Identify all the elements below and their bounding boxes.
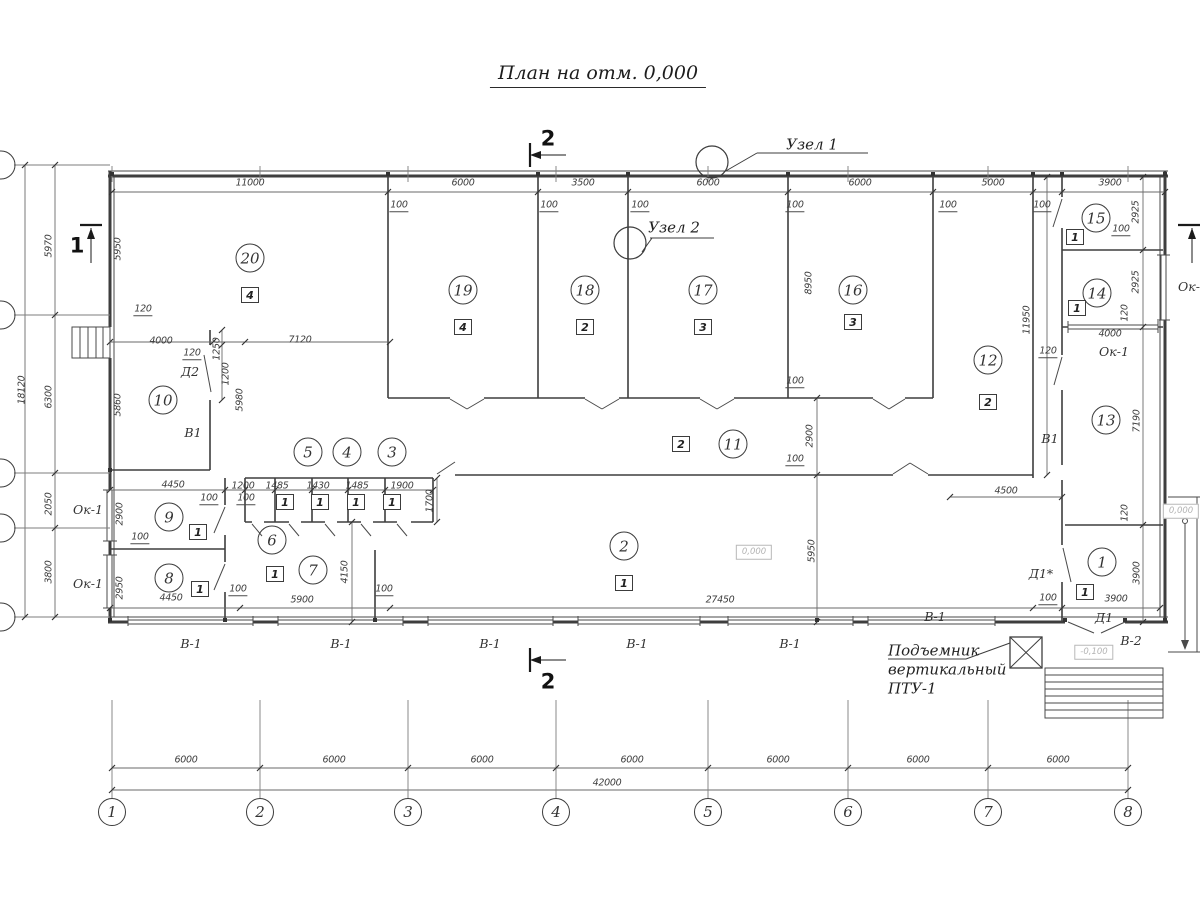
dim-label: 1250 (212, 338, 222, 361)
wall-tag: Д2 (181, 366, 199, 379)
dim-label: 5950 (807, 540, 817, 563)
room-bubble: 17 (689, 276, 718, 305)
wall-tag: В-1 (779, 638, 800, 651)
dim-callout-label: 100 (389, 200, 408, 212)
dim-callout-label: 100 (630, 200, 649, 212)
room-bubble: 18 (571, 276, 600, 305)
dim-callout-label: 100 (228, 584, 247, 596)
room-bubble: 12 (974, 346, 1003, 375)
room-bubble: 1 (1088, 548, 1117, 577)
dim-callout-label: 100 (236, 493, 255, 505)
dim-label: 120 (1120, 304, 1130, 321)
category-box: 3 (844, 314, 862, 330)
wall-tag: В-1 (479, 638, 500, 651)
dim-label: 6000 (1047, 755, 1070, 765)
dim-label: 2900 (805, 425, 815, 448)
category-box: 1 (189, 524, 207, 540)
section-mark-left: 1 (70, 236, 85, 257)
node-2-circle (614, 227, 646, 259)
category-box: 1 (191, 581, 209, 597)
dim-label: 5900 (291, 595, 314, 605)
category-box: 2 (979, 394, 997, 410)
room-bubble: 13 (1092, 406, 1121, 435)
dim-callout-label: 100 (539, 200, 558, 212)
dim-label: 18120 (17, 376, 27, 405)
dim-label: 1700 (425, 490, 435, 513)
dim-label: 3900 (1132, 562, 1142, 585)
category-box: 1 (1068, 300, 1086, 316)
stairs-right (1045, 668, 1163, 718)
category-box: 2 (576, 319, 594, 335)
wall-tag: В1 (1041, 433, 1058, 446)
dim-label: 2925 (1131, 271, 1141, 294)
dim-label: 4450 (162, 480, 185, 490)
room-bubble: 7 (299, 556, 328, 585)
wall-tag: Ок-1 (1178, 281, 1200, 294)
category-box: 3 (694, 319, 712, 335)
dim-label: 1200 (232, 481, 255, 491)
dim-label: 2925 (1131, 201, 1141, 224)
section-mark-top: 2 (541, 129, 556, 150)
dim-label: 5000 (982, 178, 1005, 188)
room-bubble: 10 (149, 386, 178, 415)
room-bubble: 8 (155, 564, 184, 593)
dim-label: 2050 (44, 493, 54, 516)
dim-label: 4150 (340, 561, 350, 584)
wall-tag: Д1 (1095, 612, 1113, 625)
axis-bubble: 7 (974, 798, 1002, 826)
elevation-badge: -0,100 (1074, 645, 1113, 660)
dim-callout-label: 120 (133, 304, 152, 316)
section-mark-bottom: 2 (541, 672, 556, 693)
category-box: 1 (1066, 229, 1084, 245)
room-bubble: 20 (236, 244, 265, 273)
dim-label: 2900 (115, 503, 125, 526)
category-box: 1 (276, 494, 294, 510)
room-bubble: 9 (155, 503, 184, 532)
wall-tag: Ок-1 (73, 578, 103, 591)
page-title: План на отм. 0,000 (490, 62, 706, 88)
dim-label: 5980 (235, 389, 245, 412)
dim-callout-label: 100 (938, 200, 957, 212)
wall-tag: В-2 (1120, 635, 1141, 648)
dim-label: 6000 (471, 755, 494, 765)
dim-label: 3800 (44, 561, 54, 584)
dim-label: 5860 (113, 394, 123, 417)
category-box: 1 (615, 575, 633, 591)
category-box: 4 (241, 287, 259, 303)
category-box: 2 (672, 436, 690, 452)
dim-callout-label: 120 (1038, 346, 1057, 358)
dim-callout-label: 100 (374, 584, 393, 596)
left-axis-bubbles (0, 151, 15, 631)
dim-label: 6000 (175, 755, 198, 765)
dim-label: 7190 (1132, 410, 1142, 433)
dim-callout-label: 100 (1032, 200, 1051, 212)
room-bubble: 6 (258, 526, 287, 555)
dim-label: 1900 (391, 481, 414, 491)
axis-bubble: 8 (1114, 798, 1142, 826)
node-2-label: Узел 2 (648, 221, 700, 236)
wall-tag: В1 (184, 427, 201, 440)
dim-label: 3900 (1099, 178, 1122, 188)
dim-label: 1430 (307, 481, 330, 491)
wall-tag: Ок-1 (73, 504, 103, 517)
dim-label: 3500 (572, 178, 595, 188)
lift-note-line1: Подъемник (888, 644, 979, 659)
wall-tag: В-1 (180, 638, 201, 651)
dim-label: 1200 (221, 363, 231, 386)
axis-bubble: 6 (834, 798, 862, 826)
dim-callout-label: 100 (130, 532, 149, 544)
room-bubble: 11 (719, 430, 748, 459)
dim-callout-label: 100 (1111, 224, 1130, 236)
category-box: 1 (383, 494, 401, 510)
dim-callout-label: 100 (785, 454, 804, 466)
dim-label: 3900 (1105, 594, 1128, 604)
category-box: 1 (347, 494, 365, 510)
dim-label: 4500 (995, 486, 1018, 496)
room-bubble: 4 (333, 438, 362, 467)
elevation-badge: 0,000 (1163, 504, 1199, 519)
dim-label: 1485 (346, 481, 369, 491)
lift-note-line2: вертикальный (888, 663, 1006, 678)
room-bubble: 3 (378, 438, 407, 467)
dim-label: 6000 (452, 178, 475, 188)
dim-label: 6000 (323, 755, 346, 765)
category-box: 1 (311, 494, 329, 510)
axis-bubble: 5 (694, 798, 722, 826)
dim-label: 11000 (236, 178, 265, 188)
wall-tag: В-1 (924, 611, 945, 624)
dim-label: 6000 (767, 755, 790, 765)
axis-bubble: 2 (246, 798, 274, 826)
dim-label: 6000 (697, 178, 720, 188)
axis-bubble: 3 (394, 798, 422, 826)
node-1-label: Узел 1 (786, 138, 838, 153)
room-bubble: 14 (1083, 279, 1112, 308)
dim-label: 8950 (804, 272, 814, 295)
wall-tag: В-1 (330, 638, 351, 651)
dim-callout-label: 100 (199, 493, 218, 505)
dim-label: 6000 (907, 755, 930, 765)
dim-label: 6300 (44, 386, 54, 409)
room-bubble: 2 (610, 532, 639, 561)
wall-tag: В-1 (626, 638, 647, 651)
dim-label: 1485 (266, 481, 289, 491)
dim-label: 6000 (621, 755, 644, 765)
room-bubble: 5 (294, 438, 323, 467)
category-box: 4 (454, 319, 472, 335)
dim-callout-label: 100 (1038, 593, 1057, 605)
dim-callout-label: 100 (785, 376, 804, 388)
platform-right (1168, 497, 1200, 652)
dim-label: 27450 (706, 595, 735, 605)
axis-bubble: 4 (542, 798, 570, 826)
category-box: 1 (1076, 584, 1094, 600)
dim-callout-label: 100 (785, 200, 804, 212)
stairs-left (72, 327, 110, 358)
dim-label: 120 (1120, 504, 1130, 521)
elevation-badge: 0,000 (736, 545, 772, 560)
wall-tag: Д1* (1029, 568, 1053, 581)
dim-label: 5950 (113, 238, 123, 261)
dim-label: 6000 (849, 178, 872, 188)
room-bubble: 16 (839, 276, 868, 305)
room-bubble: 15 (1082, 204, 1111, 233)
dim-label: 42000 (593, 778, 622, 788)
dim-label: 2950 (115, 577, 125, 600)
axis-bubble: 1 (98, 798, 126, 826)
dim-label: 4450 (160, 593, 183, 603)
node-1-circle (696, 146, 728, 178)
dim-label: 7120 (289, 335, 312, 345)
dim-label: 11950 (1022, 306, 1032, 335)
dim-label: 5970 (44, 235, 54, 258)
dim-callout-label: 120 (182, 348, 201, 360)
floor-plan-page: План на отм. 0,000 Узел 1 Узел 2 2 2 1 П… (0, 0, 1200, 900)
category-box: 1 (266, 566, 284, 582)
room-bubble: 19 (449, 276, 478, 305)
dim-label: 4000 (1099, 329, 1122, 339)
lift-note-line3: ПТУ-1 (888, 682, 937, 697)
wall-tag: Ок-1 (1099, 346, 1129, 359)
dim-label: 4000 (150, 336, 173, 346)
